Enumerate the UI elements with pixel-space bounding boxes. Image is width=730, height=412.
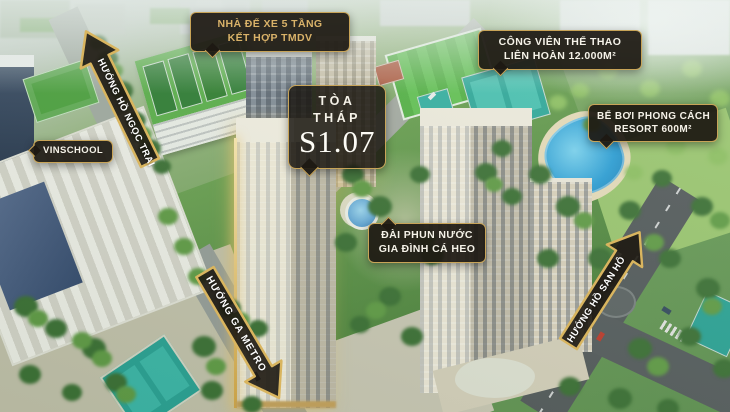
pool-label-line1: BỂ BƠI PHONG CÁCH: [597, 110, 709, 123]
garage-label-line2: KẾT HỢP TMDV: [199, 32, 341, 46]
pool-label: BỂ BƠI PHONG CÁCH RESORT 600M²: [588, 104, 718, 142]
fountain-label-line2: GIA ĐÌNH CÁ HEO: [377, 243, 477, 257]
sports-park-label: CÔNG VIÊN THỂ THAO LIÊN HOÀN 12.000M²: [478, 30, 642, 70]
vinschool-label: VINSCHOOL: [33, 140, 113, 163]
tower-s107-name: S1.07: [299, 126, 375, 159]
garage-label-line1: NHÀ ĐỂ XE 5 TẦNG: [199, 18, 341, 32]
fountain-label: ĐÀI PHUN NƯỚC GIA ĐÌNH CÁ HEO: [368, 223, 486, 263]
fountain-label-line1: ĐÀI PHUN NƯỚC: [377, 229, 477, 243]
pool-label-line2: RESORT 600M²: [597, 123, 709, 136]
vinschool-label-text: VINSCHOOL: [43, 145, 103, 158]
tower-s107-eyebrow: TÒA THÁP: [299, 93, 375, 126]
sports-park-label-line1: CÔNG VIÊN THỂ THAO: [487, 36, 633, 50]
garage-label: NHÀ ĐỂ XE 5 TẦNG KẾT HỢP TMDV: [190, 12, 350, 52]
tower-s107-label: TÒA THÁP S1.07: [288, 85, 386, 169]
aerial-site-plan: NHÀ ĐỂ XE 5 TẦNG KẾT HỢP TMDV CÔNG VIÊN …: [0, 0, 730, 412]
sports-park-label-line2: LIÊN HOÀN 12.000M²: [487, 50, 633, 64]
